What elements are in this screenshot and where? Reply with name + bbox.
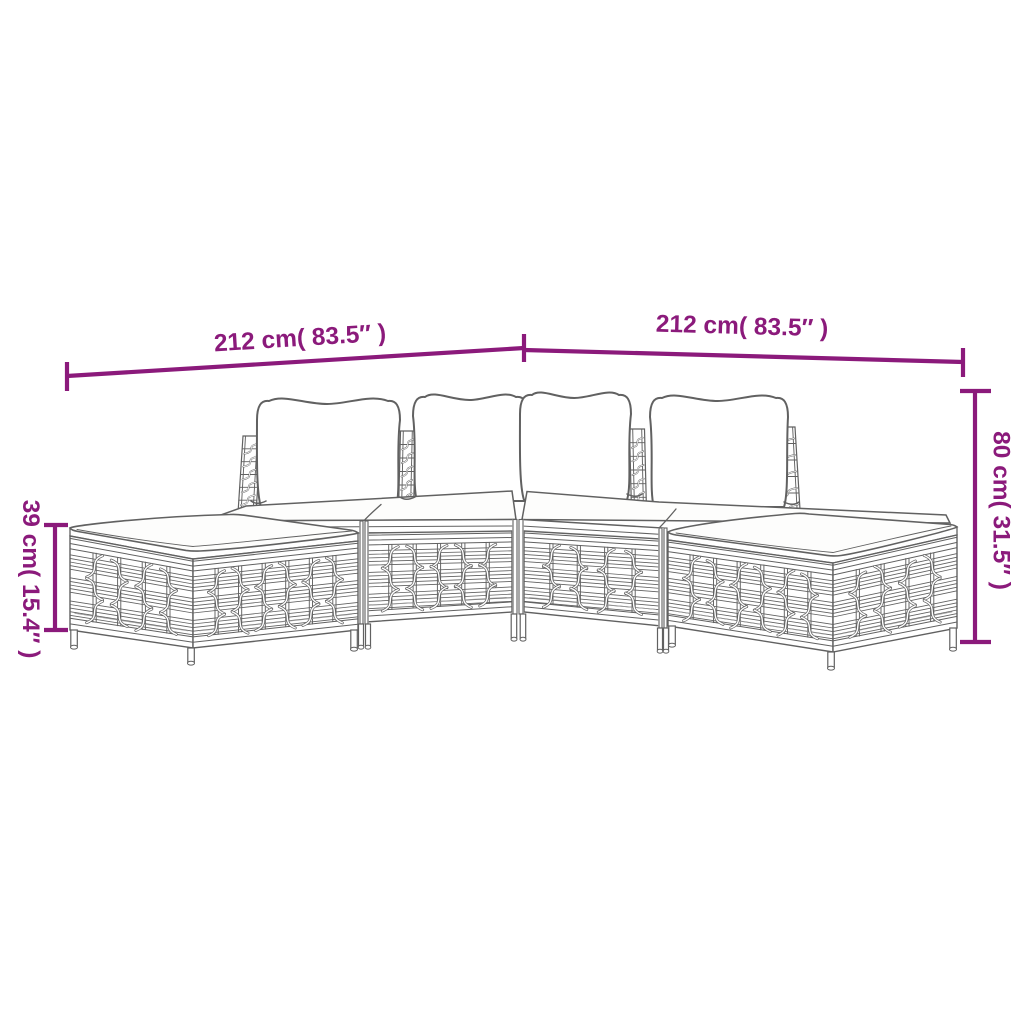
- svg-text:212 cm( 83.5″ ): 212 cm( 83.5″ ): [655, 311, 828, 343]
- svg-text:39 cm( 15.4″ ): 39 cm( 15.4″ ): [17, 500, 44, 659]
- svg-text:80 cm( 31.5″ ): 80 cm( 31.5″ ): [988, 431, 1015, 590]
